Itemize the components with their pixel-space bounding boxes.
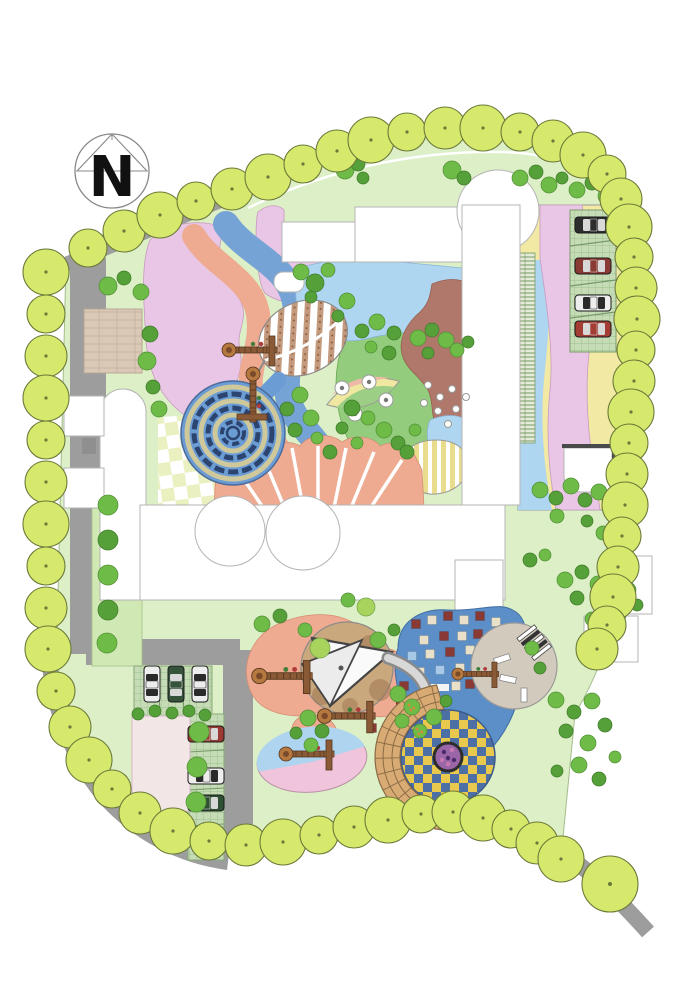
court-tile [444, 612, 453, 621]
shrub [556, 172, 568, 184]
shrub [609, 751, 621, 763]
tree-center [230, 187, 233, 190]
shrub [292, 387, 308, 403]
shrub [450, 343, 464, 357]
tree-center [171, 829, 174, 832]
court-tile [440, 632, 449, 641]
stepping-dot [437, 394, 444, 401]
shrub [332, 310, 344, 322]
shrub [98, 565, 118, 585]
tree-center [87, 758, 90, 761]
shrub [426, 709, 442, 725]
shrub [413, 724, 427, 738]
tree-center [509, 827, 512, 830]
tree-center [110, 787, 113, 790]
shrub [575, 565, 589, 579]
shrub [254, 616, 270, 632]
stepping-dot [453, 406, 460, 413]
car [144, 666, 160, 702]
tree-center [44, 480, 47, 483]
tree-center [595, 647, 598, 650]
shrub [598, 718, 612, 732]
tree-center [46, 647, 49, 650]
shrub [400, 445, 414, 459]
building-bay-2 [266, 496, 340, 570]
shrub [361, 411, 375, 425]
shrub [376, 422, 392, 438]
shrub [539, 549, 551, 561]
tree-center [518, 130, 521, 133]
shrub [410, 330, 426, 346]
shrub [355, 324, 369, 338]
tree-center [481, 816, 484, 819]
tree-center [386, 818, 389, 821]
shrub [529, 165, 543, 179]
tree-center [44, 438, 47, 441]
stepping-dot [421, 400, 428, 407]
shrub [146, 380, 160, 394]
court-tile [428, 616, 437, 625]
road-stair [82, 438, 96, 454]
shrub [305, 291, 317, 303]
tree-center [535, 841, 538, 844]
tree-center [627, 225, 630, 228]
stepping-dot [425, 382, 432, 389]
tree-center [605, 172, 608, 175]
tree-center [194, 199, 197, 202]
shrub [357, 172, 369, 184]
tree-center [138, 811, 141, 814]
tree-center [634, 286, 637, 289]
north-compass: N [75, 134, 149, 210]
shrub [390, 686, 406, 702]
car [192, 666, 208, 702]
shrub [310, 638, 330, 658]
shrub [290, 727, 302, 739]
paver-strip [520, 253, 535, 443]
tree-center [281, 840, 284, 843]
shrub [422, 347, 434, 359]
shrub [288, 423, 302, 437]
shrub [569, 182, 585, 198]
shrub [409, 424, 421, 436]
shrub [166, 707, 178, 719]
shrub [404, 699, 420, 715]
court-tile [446, 648, 455, 657]
car [575, 258, 611, 274]
shrub [457, 171, 471, 185]
tree-center [419, 812, 422, 815]
building-north-west-wing [282, 222, 355, 262]
tree-center [86, 246, 89, 249]
shrub [321, 263, 335, 277]
tree-center [627, 441, 630, 444]
shrub [341, 593, 355, 607]
tree-center [611, 595, 614, 598]
shrub [117, 271, 131, 285]
shrub [298, 623, 312, 637]
tree-center [369, 138, 372, 141]
shrub [306, 274, 324, 292]
stepping-dot [435, 408, 442, 415]
tree-center [635, 317, 638, 320]
court-tile [436, 666, 445, 675]
court-tile [426, 650, 435, 659]
shrub [151, 401, 167, 417]
court-tile [408, 652, 417, 661]
shrub [382, 346, 396, 360]
tree-center [44, 396, 47, 399]
shrub [183, 705, 195, 717]
tree-center [301, 162, 304, 165]
shrub [315, 724, 329, 738]
shrub [133, 284, 149, 300]
tree-center [605, 623, 608, 626]
shrub [199, 709, 211, 721]
shrub [550, 509, 564, 523]
tree-center [481, 126, 484, 129]
building-entrance-2 [64, 468, 104, 508]
shrub [303, 410, 319, 426]
tree-center [581, 153, 584, 156]
shrub [97, 633, 117, 653]
shrub [99, 277, 117, 295]
tree-center [632, 255, 635, 258]
shrub [440, 695, 452, 707]
tree-center [619, 197, 622, 200]
court-tile [460, 616, 469, 625]
shrub [388, 624, 400, 636]
shrub [339, 293, 355, 309]
tree-center [620, 534, 623, 537]
tree-center [623, 503, 626, 506]
shrub [395, 714, 409, 728]
shrub [293, 264, 309, 280]
tree-center [317, 833, 320, 836]
shrub [142, 326, 158, 342]
tree-center [451, 810, 454, 813]
shrub [365, 341, 377, 353]
court-tile [420, 636, 429, 645]
tree-center [244, 843, 247, 846]
building-bay-1 [195, 496, 265, 566]
shrub [311, 432, 323, 444]
shrub [186, 792, 206, 812]
court-tile [476, 612, 485, 621]
court-tile [412, 620, 421, 629]
tree-center [551, 139, 554, 142]
shrub [369, 314, 385, 330]
tree-center [44, 354, 47, 357]
building-east-wing [462, 205, 520, 505]
shrub [592, 772, 606, 786]
site-plan-drawing: N [0, 0, 699, 989]
tree-center [158, 213, 161, 216]
tree-center [44, 312, 47, 315]
tree-center [207, 839, 210, 842]
shrub [98, 495, 118, 515]
tree-center [266, 175, 269, 178]
beige-paved-plaza [84, 309, 142, 373]
shrub [273, 609, 287, 623]
shrub [300, 710, 316, 726]
shrub [187, 757, 207, 777]
court-tile [458, 632, 467, 641]
shrub [138, 352, 156, 370]
shrub [578, 493, 592, 507]
shrub [189, 722, 209, 742]
tree-center [625, 472, 628, 475]
tree-center [44, 270, 47, 273]
tree-center [335, 149, 338, 152]
site-plan: N [0, 0, 699, 989]
tree-center [632, 379, 635, 382]
car [575, 321, 611, 337]
shrub [351, 437, 363, 449]
shrub [563, 478, 579, 494]
tree-center [443, 126, 446, 129]
shrub [344, 400, 360, 416]
tree-center [352, 825, 355, 828]
court-tile [452, 682, 461, 691]
tree-center [634, 348, 637, 351]
shrub [567, 705, 581, 719]
shrub [557, 572, 573, 588]
shrub [304, 738, 318, 752]
shrub [571, 757, 587, 773]
shrub [98, 530, 118, 550]
tree-center [629, 410, 632, 413]
building-north-wing [355, 207, 462, 262]
shrub [559, 724, 573, 738]
shrub [370, 632, 386, 648]
tree-center [405, 130, 408, 133]
tree-center [122, 229, 125, 232]
shrub [525, 641, 539, 655]
tree-center [68, 725, 71, 728]
shrub [387, 326, 401, 340]
compass-north-label: N [89, 145, 136, 210]
tree-center [44, 564, 47, 567]
shrub [357, 598, 375, 616]
shrub [323, 445, 337, 459]
shrub [336, 422, 348, 434]
shrub [548, 692, 564, 708]
shrub [581, 515, 593, 527]
shrub [551, 765, 563, 777]
shrub [425, 323, 439, 337]
tree-center [616, 565, 619, 568]
shrub [98, 600, 118, 620]
shrub [280, 402, 294, 416]
stepping-dot [463, 394, 470, 401]
tree-center [54, 689, 57, 692]
shrub [149, 705, 161, 717]
court-tile [474, 630, 483, 639]
stepping-dot [449, 386, 456, 393]
shrub [534, 662, 546, 674]
tree-center [559, 857, 562, 860]
shrub [570, 591, 584, 605]
shrub [580, 735, 596, 751]
stepping-dot [445, 421, 452, 428]
shrub [541, 177, 557, 193]
building-entrance-1 [64, 396, 104, 436]
car [168, 666, 184, 702]
car [575, 295, 611, 311]
shrub [532, 482, 548, 498]
shrub [584, 693, 600, 709]
bench [521, 688, 527, 702]
tree-center [44, 606, 47, 609]
shrub [523, 553, 537, 567]
tree-center [44, 522, 47, 525]
shrub [132, 708, 144, 720]
shrub [512, 170, 528, 186]
shrub [549, 491, 563, 505]
shrub [462, 336, 474, 348]
